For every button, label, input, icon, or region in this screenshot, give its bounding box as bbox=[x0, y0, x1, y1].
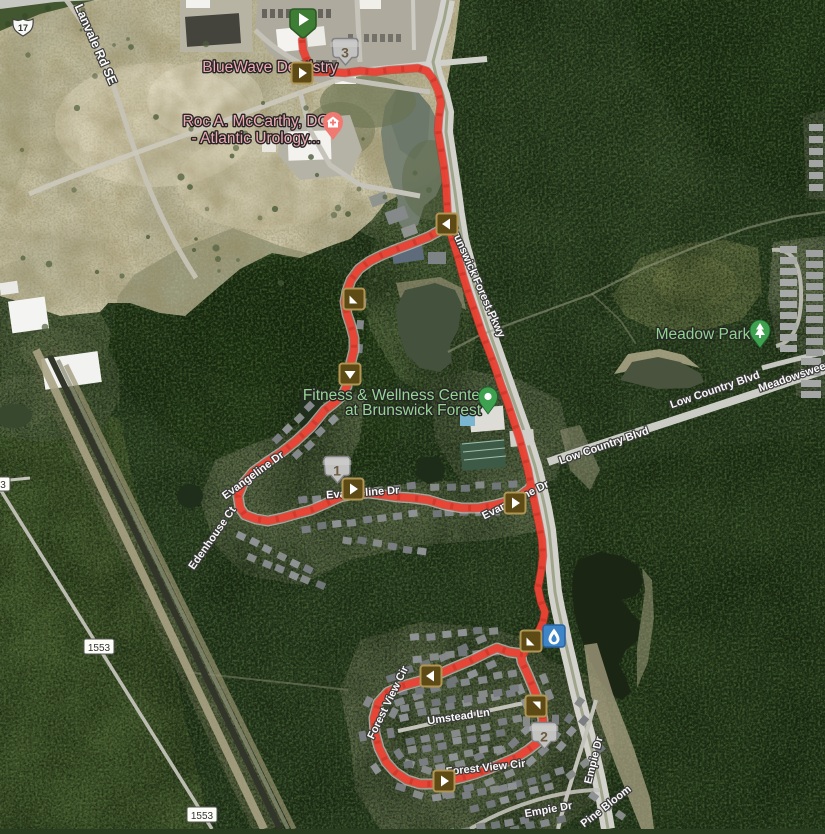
svg-text:1: 1 bbox=[333, 463, 341, 479]
svg-text:Roc A. McCarthy, DO: Roc A. McCarthy, DO bbox=[183, 113, 330, 130]
svg-text:17: 17 bbox=[18, 23, 28, 33]
svg-text:Meadow Park: Meadow Park bbox=[656, 326, 751, 343]
svg-text:at Brunswick Forest: at Brunswick Forest bbox=[345, 402, 482, 419]
svg-text:- Atlantic Urology...: - Atlantic Urology... bbox=[192, 130, 321, 147]
svg-text:3: 3 bbox=[341, 45, 349, 61]
svg-text:1553: 1553 bbox=[191, 811, 214, 822]
svg-text:3: 3 bbox=[0, 480, 6, 491]
svg-text:BlueWave Dentistry: BlueWave Dentistry bbox=[202, 59, 338, 76]
svg-text:2: 2 bbox=[540, 729, 548, 745]
svg-text:1553: 1553 bbox=[88, 643, 111, 654]
